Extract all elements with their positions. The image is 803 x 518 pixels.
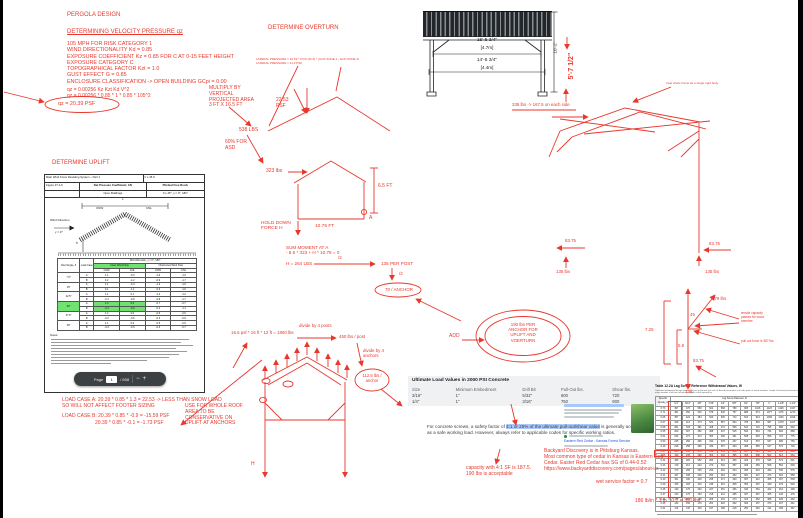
uplift-area-calc: 15.6 psf * 16 ft * 12 ft = 1800 lbs [231,330,294,335]
pdf-page-total: / 658 [120,377,129,382]
asd-note: 60% FOR ASD [225,140,247,151]
asce-col-case: Load Case [80,259,94,273]
asce-value-cell: -0.3 [145,325,171,330]
zoom-out-icon[interactable]: − [136,376,140,382]
pdf-toolbar-divider [132,375,133,383]
asce-case-cell: B [80,325,94,330]
concrete-table-title: Ultimate Load Values in 2000 PSI Concret… [412,378,656,383]
cedar-search-card: Eastern Red Cedar - Kansas Forest Servic… [564,404,654,448]
per-post-135: 135 PER POST [381,261,413,266]
pdf-toolbar: Page / 658 − + [74,372,166,386]
asce-dim-h: h [76,242,78,246]
lag-cell: 185 [717,507,729,512]
asce-angle-cell: 30° [58,302,80,312]
asce-coefficient-table: Roof Angle, θLoad CaseWind Direction, γ … [57,258,197,331]
hold-down-label: HOLD DOWN FORCE H [261,221,291,232]
lag-cell: 311 [764,507,776,512]
h-stray: H [251,462,255,468]
concrete-cell: 3/16" [522,398,561,404]
asce-notes-label: Notes: [50,334,58,337]
asce-figure-roof-type: Pitched Free Roofs [147,183,204,190]
force-83-fd: 83.75 [693,358,704,363]
rigid-body-note: treat whole frame as a single rigid body [666,82,718,86]
asce-angle-cell: 22.5° [58,292,80,302]
dim-5-7-red: 5'-7 1/2" [568,44,576,88]
dim-7-25: 7.25 [645,327,654,332]
asce-cnl: CNL [146,207,152,211]
lag-cell: 367 [787,507,799,512]
lag-table-caption: Table 12.2A Lag Screw Reference Withdraw… [655,385,799,389]
side-load-note: 335 lbs -> 167.5 on each side [512,102,570,107]
lag-cell: 218 [729,507,741,512]
asce-header-spacer [45,191,80,197]
lag-cell: 149 [694,507,706,512]
asce-figure-title: Net Pressure Coefficient, CN [80,183,147,190]
asce-angle-cell: 45° [58,321,80,331]
qz-result: qz = 20.39 PSF [58,101,95,107]
cedar-snippet-lines [564,404,628,433]
asce-dim-l: L [122,198,124,202]
lag-table-subtitle: Tabulated withdrawal design values (W) a… [655,390,799,395]
add-label: ADD [449,334,460,340]
pergola-title: PERGOLA DESIGN [67,12,120,19]
cedar-research-note: Backyard Discovery is in Pittsburg Kansa… [544,448,663,472]
dim-15-5: 15'-5 3/4" [462,38,512,44]
source-favicon-icon [564,435,567,438]
pullout-note: pull out force is 387 lbs [741,340,774,344]
lag-table-footnote [657,514,757,515]
resultant-579: 579 lbs [712,296,726,301]
force-135-left: 135 lbs [556,269,570,274]
asce-figure-document[interactable]: Main Wind Force Resisting System – Part … [44,174,205,393]
asce-header-right: h ≤ 45 ft. [144,175,204,182]
canvas-right-border [798,0,803,518]
divide-4-posts: divide by 4 posts [299,323,332,328]
cedar-tree-image[interactable] [631,404,654,433]
force-323: 323 lbs [266,169,282,175]
asce-angle-cell: 7.5° [58,273,80,283]
asce-theta-range: θ ≤ 45°, γ = 0°, 180° [147,191,204,197]
tensile-note: tensile capacity passes for wood member [741,312,764,324]
divide-2-a: /2 [338,255,342,260]
load-case-b2: 20.39 * 0.85 * -0.1 = -1.73 PSF [95,421,164,427]
lag-row-highlight [654,450,801,457]
asce-angle-cell: 15° [58,282,80,292]
asce-cnw: CNW [96,207,103,211]
concrete-cell: 1/4" [412,398,456,404]
pressure-label: 22.53 PSF [276,98,289,109]
force-83-left: 83.75 [565,238,576,243]
lag-cell: 281 [752,507,764,512]
uplift-heading: DETERMINE UPLIFT [52,160,110,167]
multiply-note: MULTIPLY BY VERTICAL PROJECTED AREA 3 FT… [209,86,254,109]
lateral-pressure-calc: LATERAL PRESSURE = 22.53 * COS (30.6) * … [256,58,359,65]
velocity-heading: DETERMINING VELOCITY PRESSURE qz [67,29,183,36]
load-case-b1: LOAD CASE B: 20.39 * 0.85 * -0.9 = -15.5… [62,414,169,420]
point-a-label: A [369,216,372,222]
asce-building-type: Open Buildings [80,191,147,197]
asce-angle-cell: 37.5° [58,311,80,321]
pergola-roof-slats [423,11,552,37]
lag-cell: 339 [775,507,787,512]
lag-cell: 110 [671,507,683,512]
pdf-page-label: Page [94,377,103,382]
qz-formula: qz = 0.00256 Kz Kzt Kd V^2 qz = 0.00256 … [67,88,151,100]
lag-cell: 0.31 [656,507,671,512]
asce-header-left: Main Wind Force Resisting System – Part … [45,175,144,182]
force-135-right: 135 lbs [705,269,719,274]
asce-value-cell: -0.3 [94,325,120,330]
divide-4-anchors: divide by 4 anchors [363,348,384,358]
dim-6-5ft: 6.5 FT [378,184,392,190]
use-whole-roof-note: USE FOR WHOLE ROOF AREA TO BE CONSERVATI… [185,404,243,427]
velocity-params: 105 MPH FOR RISK CATEGORY 1 WIND DIRECTI… [67,41,234,85]
total-per-anchor: 190 lbs PER ANCHOR FOR UPLIFT AND VOERTU… [495,322,551,343]
canvas-left-border [0,0,3,518]
per-post-450: 450 lbs / post [339,334,365,339]
lag-cell: 167 [705,507,717,512]
per-anchor-70: 70 / ANCHOR [376,287,422,292]
per-anchor-112: 112.5 lbs / anchor [356,374,388,384]
lag-cell: 250 [740,507,752,512]
capacity-note: capacity with 4:1 SF is 187.5. 190 lbs i… [466,465,531,477]
cedar-source-row [564,435,654,438]
asce-wind-direction: Wind Direction [50,219,70,223]
asce-notes [51,335,201,366]
design-canvas: { "colors":{"red":"#e8372c","green_highl… [0,0,803,518]
withdrawal-calc: 186 lb/in * 3 in * 0.7 = 391 lbs [635,499,700,505]
dim-15-5-m: [4.7m] [462,45,512,50]
sum-moment: SUM MOMENT AT A - 8.5 * 323 + H * 10.75 … [286,245,339,256]
asce-value-cell: -0.7 [171,325,197,330]
asce-figure-number: Figure 27.4-5 [45,183,80,190]
lag-cell: 130 [682,507,694,512]
dim-height: 10'-2" [552,35,557,61]
concrete-cell: 1" [456,398,523,404]
cedar-result-link[interactable]: Eastern Red Cedar - Kansas Forest Servic… [564,439,654,443]
force-83-right: 83.75 [709,241,720,246]
zoom-in-icon[interactable]: + [143,376,147,382]
dim-14-5: 14'-5 3/4" [462,58,512,64]
pdf-page-input[interactable] [106,376,117,383]
safety-text-pre: For concrete screws, a safety factor of [427,424,506,429]
concrete-load-table: Ultimate Load Values in 2000 PSI Concret… [408,376,660,406]
h-result: H = 264 LBS [286,261,312,266]
divide-2-b: /2 [399,271,403,276]
wet-service-note: wet service factor = 0.7 [596,480,648,486]
lag-row: 0.31110130149167185218250281311339367 [656,507,799,512]
asce-gamma: γ = 0° [55,231,63,235]
asce-value-cell: -0.5 [120,325,146,330]
dim-5-8: 5.8 [678,343,684,348]
dim-10-75ft: 10.75 FT [315,224,334,230]
angle-45: 45 [690,312,695,317]
overturn-heading: DETERMINE OVERTURN [268,25,339,32]
force-538: 538 LBS [239,128,258,134]
force-135-fd: 135 [685,389,692,394]
dim-14-5-m: [4.4m] [462,65,512,70]
asce-col-angle: Roof Angle, θ [58,259,80,273]
